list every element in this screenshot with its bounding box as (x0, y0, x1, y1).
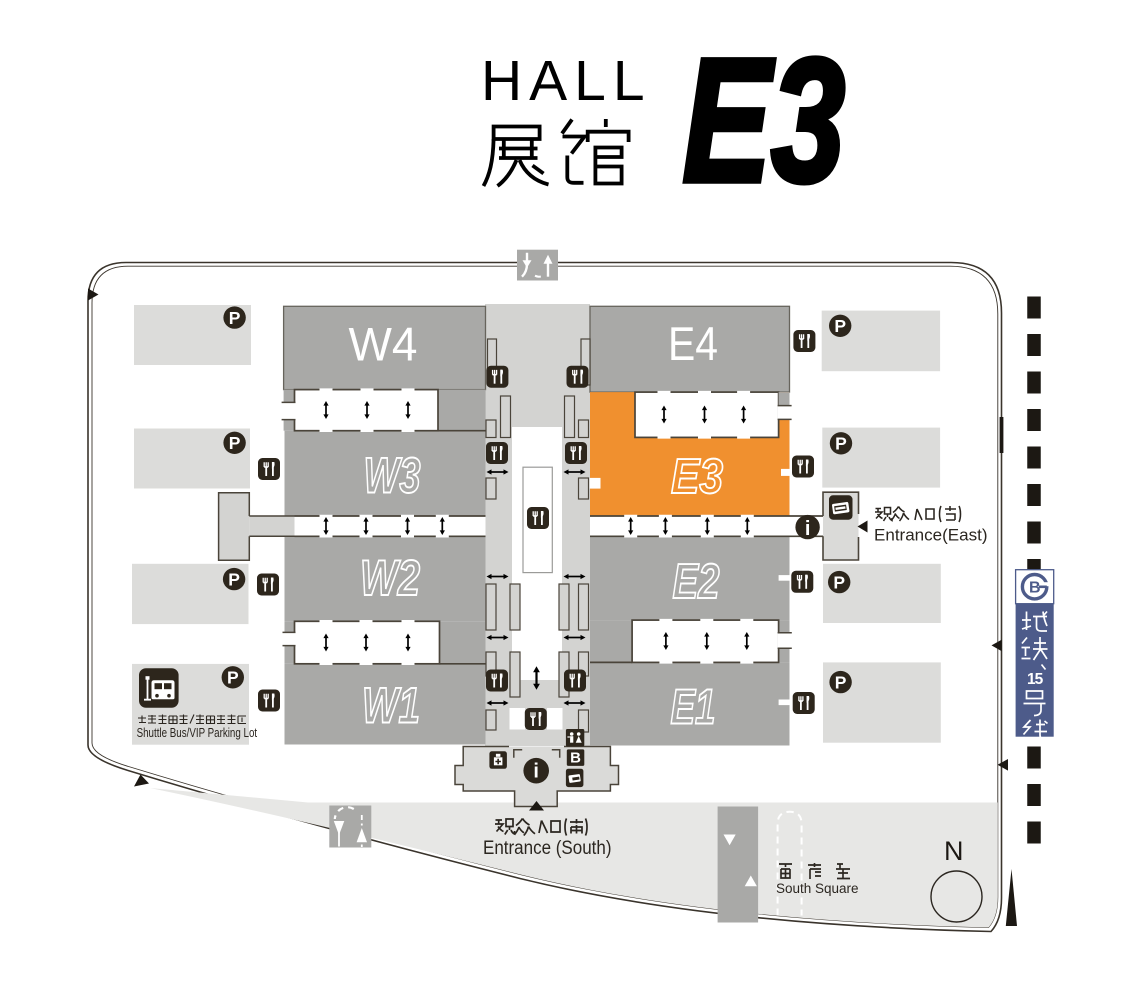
svg-text:B: B (570, 750, 581, 767)
svg-text:HALL: HALL (481, 49, 652, 113)
svg-text:15: 15 (1027, 671, 1044, 688)
svg-text:Shuttle Bus/VIP Parking Lot: Shuttle Bus/VIP Parking Lot (137, 725, 258, 740)
svg-text:W3: W3 (364, 447, 421, 504)
svg-text:South Square: South Square (776, 881, 859, 896)
svg-text:Entrance (South): Entrance (South) (483, 838, 612, 859)
svg-text:E3: E3 (683, 23, 846, 219)
svg-text:i: i (533, 761, 539, 783)
svg-text:E2: E2 (673, 555, 720, 609)
svg-text:E1: E1 (671, 681, 716, 735)
svg-text:W2: W2 (360, 549, 420, 606)
svg-text:E4: E4 (668, 317, 718, 370)
svg-text:W4: W4 (349, 318, 418, 371)
svg-text:N: N (944, 836, 964, 866)
svg-text:Entrance(East): Entrance(East) (874, 527, 988, 545)
svg-text:E3: E3 (671, 450, 723, 504)
svg-text:i: i (805, 518, 811, 540)
svg-text:W1: W1 (362, 677, 420, 734)
svg-text:B: B (1029, 580, 1041, 597)
